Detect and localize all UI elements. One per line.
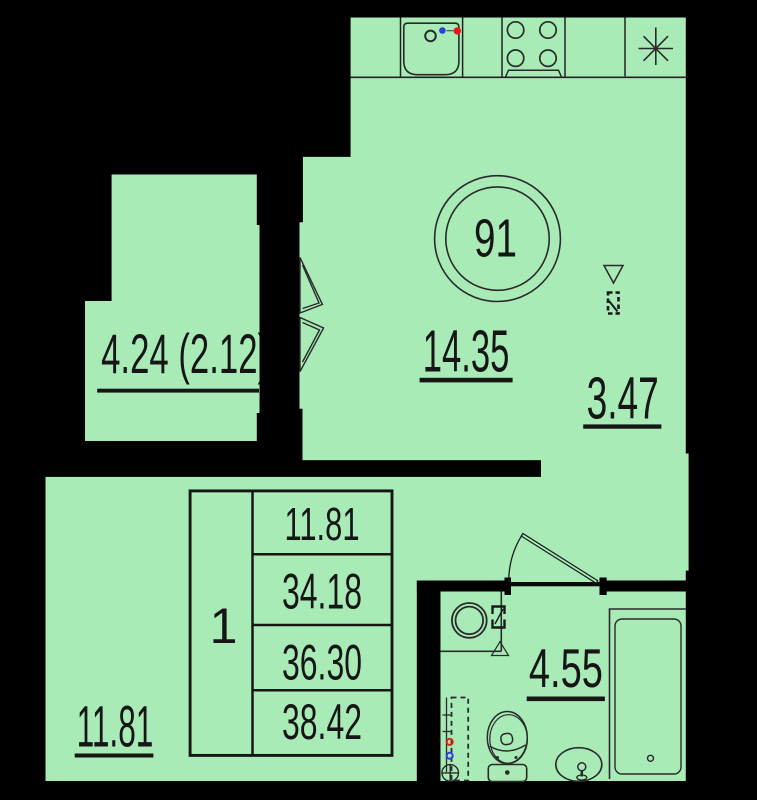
svg-text:11.81: 11.81 [285,498,360,550]
svg-text:91: 91 [474,209,517,269]
svg-text:34.18: 34.18 [282,564,362,620]
svg-text:14.35: 14.35 [423,318,510,384]
svg-text:1: 1 [210,598,238,654]
svg-text:4.24 (2.12): 4.24 (2.12) [101,322,269,385]
svg-text:38.42: 38.42 [282,694,362,750]
svg-text:11.81: 11.81 [77,695,154,760]
svg-text:4.55: 4.55 [529,637,603,699]
svg-text:3.47: 3.47 [587,365,659,431]
svg-text:36.30: 36.30 [282,634,362,690]
